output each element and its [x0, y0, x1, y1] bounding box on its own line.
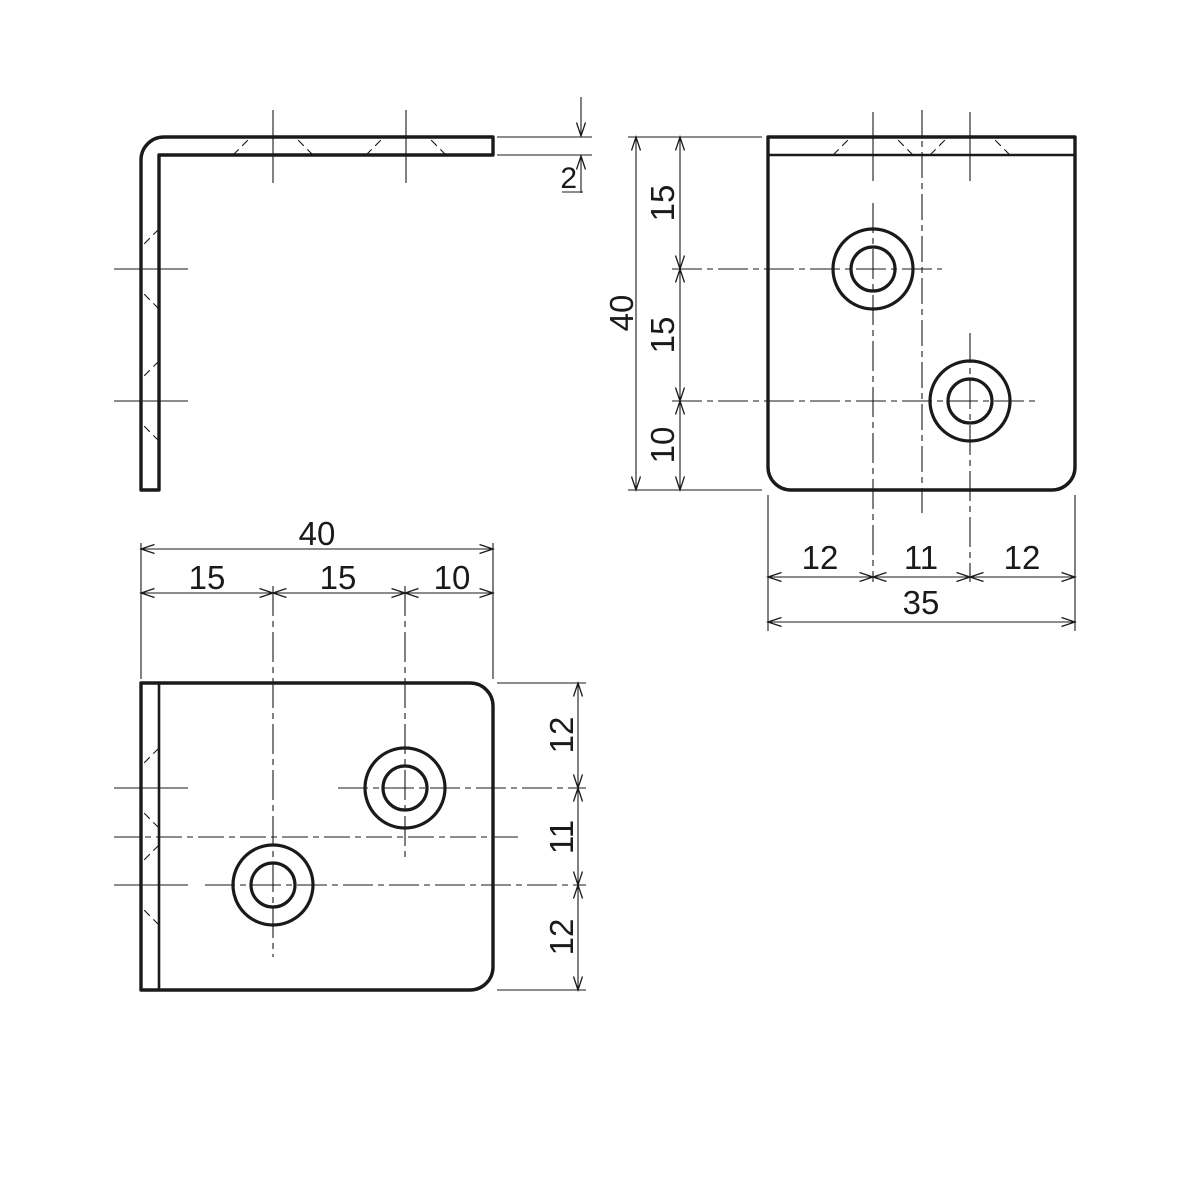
countersink-edge [930, 137, 948, 155]
countersink-edge [233, 137, 251, 155]
dimension-value-height-total: 40 [603, 295, 640, 332]
dimension-value-width-seg2: 15 [320, 559, 357, 596]
dimension-value-width-total: 40 [299, 515, 336, 552]
countersink-edge [141, 423, 159, 441]
top-view: 40 15 15 10 12 11 12 35 [603, 110, 1075, 631]
dimension-value-height-seg2: 11 [543, 820, 580, 854]
dimension-value-width-seg3: 12 [1004, 539, 1041, 576]
dimension-value-width-seg2: 11 [904, 539, 938, 576]
height-total-dimension: 40 [603, 137, 762, 490]
countersink-edge [141, 361, 159, 379]
width-total-dimension: 35 [768, 584, 1075, 622]
width-chain-dimension: 15 15 10 [141, 559, 493, 596]
dimension-value-height-seg1: 15 [644, 185, 681, 222]
dimension-value-width-total: 35 [903, 584, 940, 621]
countersink-edge [141, 291, 159, 309]
dimension-value-width-seg3: 10 [434, 559, 471, 596]
dimension-value-height-seg1: 12 [543, 717, 580, 754]
dimension-value-width-seg1: 12 [802, 539, 839, 576]
side-view: 2 [114, 97, 592, 490]
thickness-dimension: 2 [497, 97, 592, 195]
dimension-value-width-seg1: 15 [189, 559, 226, 596]
front-view: 40 15 15 10 12 11 12 [114, 515, 586, 990]
countersink-edge [366, 137, 384, 155]
countersink-edge [992, 137, 1010, 155]
countersink-edge [141, 810, 159, 828]
countersink-edge [895, 137, 913, 155]
countersink-edge [141, 229, 159, 247]
width-total-dimension: 40 [141, 515, 493, 679]
dimension-value-height-seg3: 12 [543, 919, 580, 956]
countersink-edge [141, 907, 159, 925]
countersink-edge [141, 748, 159, 766]
l-profile-outline [141, 137, 493, 490]
height-chain-dimension: 15 15 10 [644, 137, 681, 490]
dimension-value-height-seg3: 10 [644, 427, 681, 464]
dimension-value-thickness: 2 [560, 162, 577, 195]
countersink-edge [295, 137, 313, 155]
dimension-value-height-seg2: 15 [644, 317, 681, 354]
countersink-edge [833, 137, 851, 155]
technical-drawing-canvas: 2 40 [0, 0, 1200, 1200]
countersink-edge [428, 137, 446, 155]
countersink-edge [141, 845, 159, 863]
